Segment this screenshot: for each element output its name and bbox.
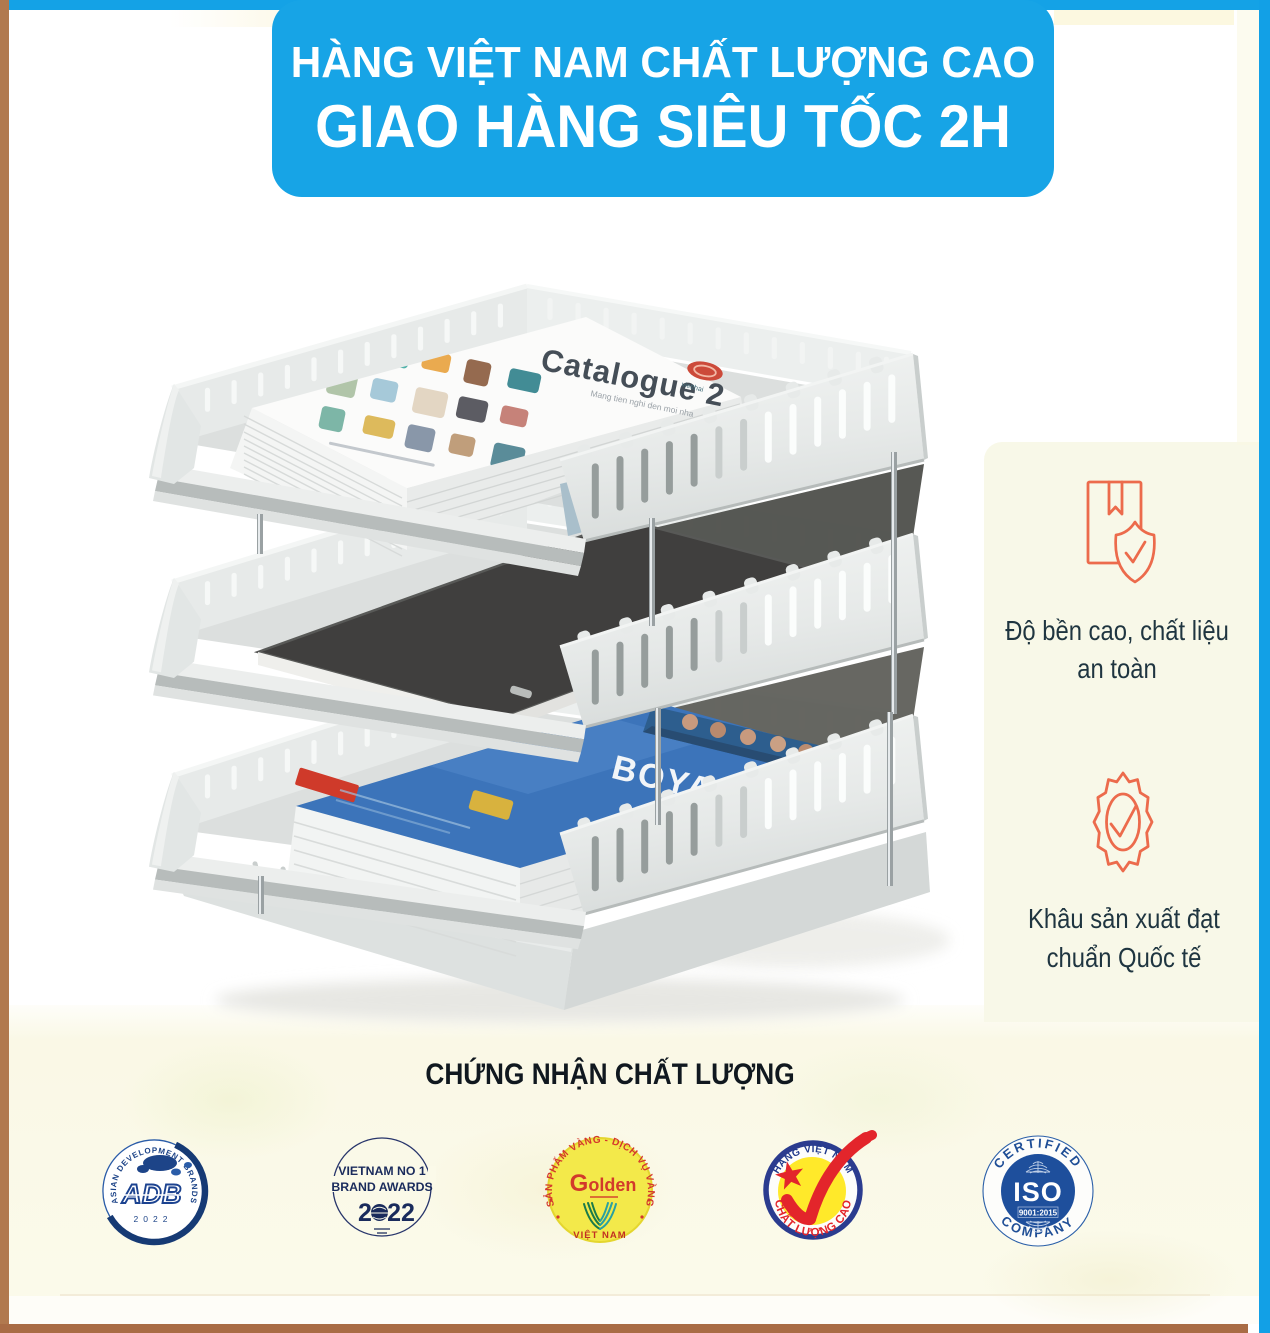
svg-text:Golden: Golden bbox=[570, 1170, 637, 1197]
svg-text:BRAND AWARDS: BRAND AWARDS bbox=[331, 1180, 432, 1194]
svg-text:VIETNAM NO 1: VIETNAM NO 1 bbox=[338, 1164, 426, 1178]
svg-text:VIỆT NAM: VIỆT NAM bbox=[573, 1229, 626, 1241]
svg-text:2: 2 bbox=[358, 1199, 372, 1227]
svg-text:9001:2015: 9001:2015 bbox=[1019, 1209, 1058, 1218]
svg-text:22: 22 bbox=[387, 1199, 415, 1227]
svg-text:ADB: ADB bbox=[121, 1179, 182, 1209]
svg-text:2022: 2022 bbox=[134, 1214, 173, 1224]
svg-text:ISO: ISO bbox=[1013, 1177, 1063, 1207]
